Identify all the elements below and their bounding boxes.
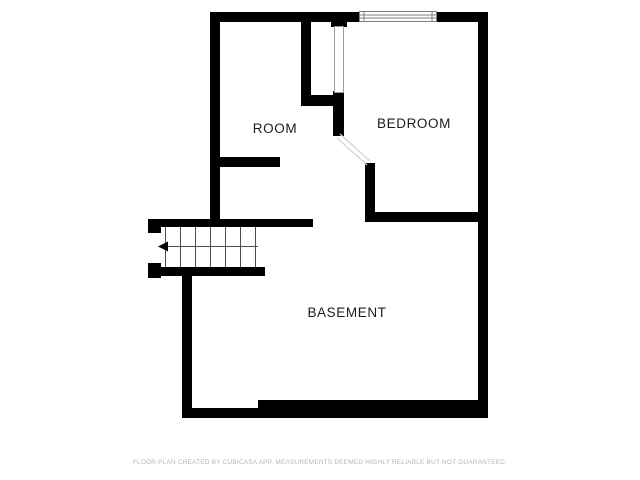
window-frame <box>360 12 437 22</box>
wall-left-upper <box>210 12 220 227</box>
door-leaf-line-2 <box>337 138 367 165</box>
walls <box>148 12 488 418</box>
bedroom-door-leaf <box>337 134 370 165</box>
wall-bottom-thick <box>258 400 488 418</box>
door-leaf-line-1 <box>340 134 370 161</box>
wall-bedroom-left-upper <box>333 91 344 136</box>
room-label-basement: BASEMENT <box>307 305 386 320</box>
footer-disclaimer: FLOOR PLAN CREATED BY CUBICASA APP. MEAS… <box>133 459 507 466</box>
floor-plan-page: ROOM BEDROOM BASEMENT FLOOR PLAN CREATED… <box>0 0 640 480</box>
wall-closet-vertical <box>301 22 311 106</box>
room-label-bedroom: BEDROOM <box>377 116 451 131</box>
closet-door-opening <box>335 27 344 93</box>
window-symbol <box>360 12 437 22</box>
wall-stair-bottom-jamb <box>148 263 161 278</box>
stair-direction-arrow-icon <box>158 242 168 252</box>
wall-top-left-segment <box>210 12 359 22</box>
wall-bottom-thin <box>182 408 263 418</box>
floor-plan-canvas: ROOM BEDROOM BASEMENT FLOOR PLAN CREATED… <box>0 0 640 480</box>
room-label-room: ROOM <box>253 121 297 136</box>
staircase <box>158 227 258 267</box>
wall-bedroom-bottom <box>365 212 488 222</box>
wall-room-divider <box>210 157 280 167</box>
wall-stair-top <box>148 219 313 227</box>
wall-basement-left <box>182 274 192 418</box>
wall-stair-bottom <box>153 267 265 276</box>
wall-stair-top-jamb <box>148 219 161 233</box>
